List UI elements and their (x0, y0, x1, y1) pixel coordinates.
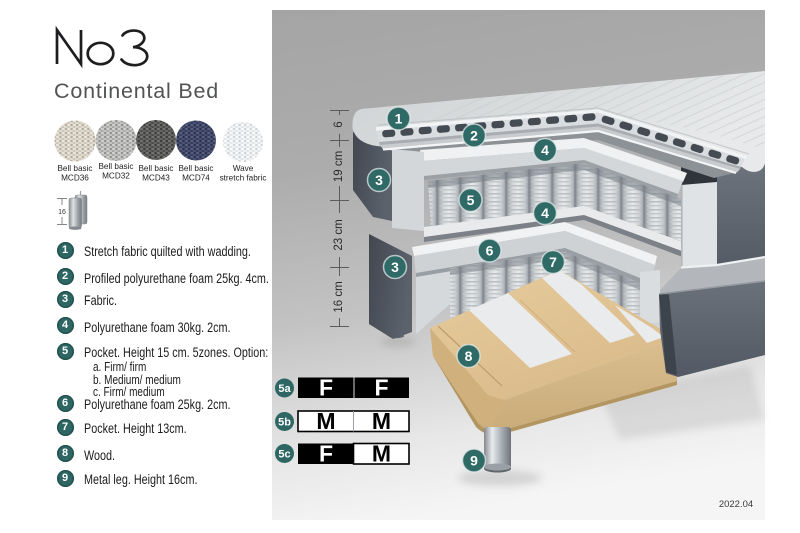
svg-text:F: F (319, 375, 333, 401)
svg-text:5a: 5a (278, 383, 291, 395)
svg-text:2: 2 (470, 128, 478, 144)
svg-text:5: 5 (467, 192, 475, 208)
svg-text:23 cm: 23 cm (333, 219, 345, 250)
svg-text:M: M (316, 408, 335, 434)
svg-text:5c: 5c (278, 449, 290, 461)
svg-text:16 cm: 16 cm (333, 281, 345, 312)
svg-text:8: 8 (465, 348, 473, 364)
svg-text:6: 6 (486, 243, 494, 259)
svg-text:3: 3 (391, 259, 399, 275)
svg-text:M: M (372, 408, 391, 434)
svg-text:6: 6 (333, 121, 345, 127)
svg-text:1: 1 (395, 111, 403, 127)
svg-text:F: F (374, 375, 388, 401)
svg-text:4: 4 (541, 142, 549, 158)
svg-text:F: F (319, 441, 333, 467)
svg-text:7: 7 (549, 254, 557, 270)
svg-text:2022.04: 2022.04 (719, 499, 753, 510)
svg-text:9: 9 (470, 453, 478, 469)
svg-text:5b: 5b (278, 417, 291, 429)
svg-text:4: 4 (541, 205, 549, 221)
svg-text:3: 3 (375, 172, 383, 188)
svg-text:19 cm: 19 cm (333, 151, 345, 182)
svg-text:M: M (372, 441, 391, 467)
